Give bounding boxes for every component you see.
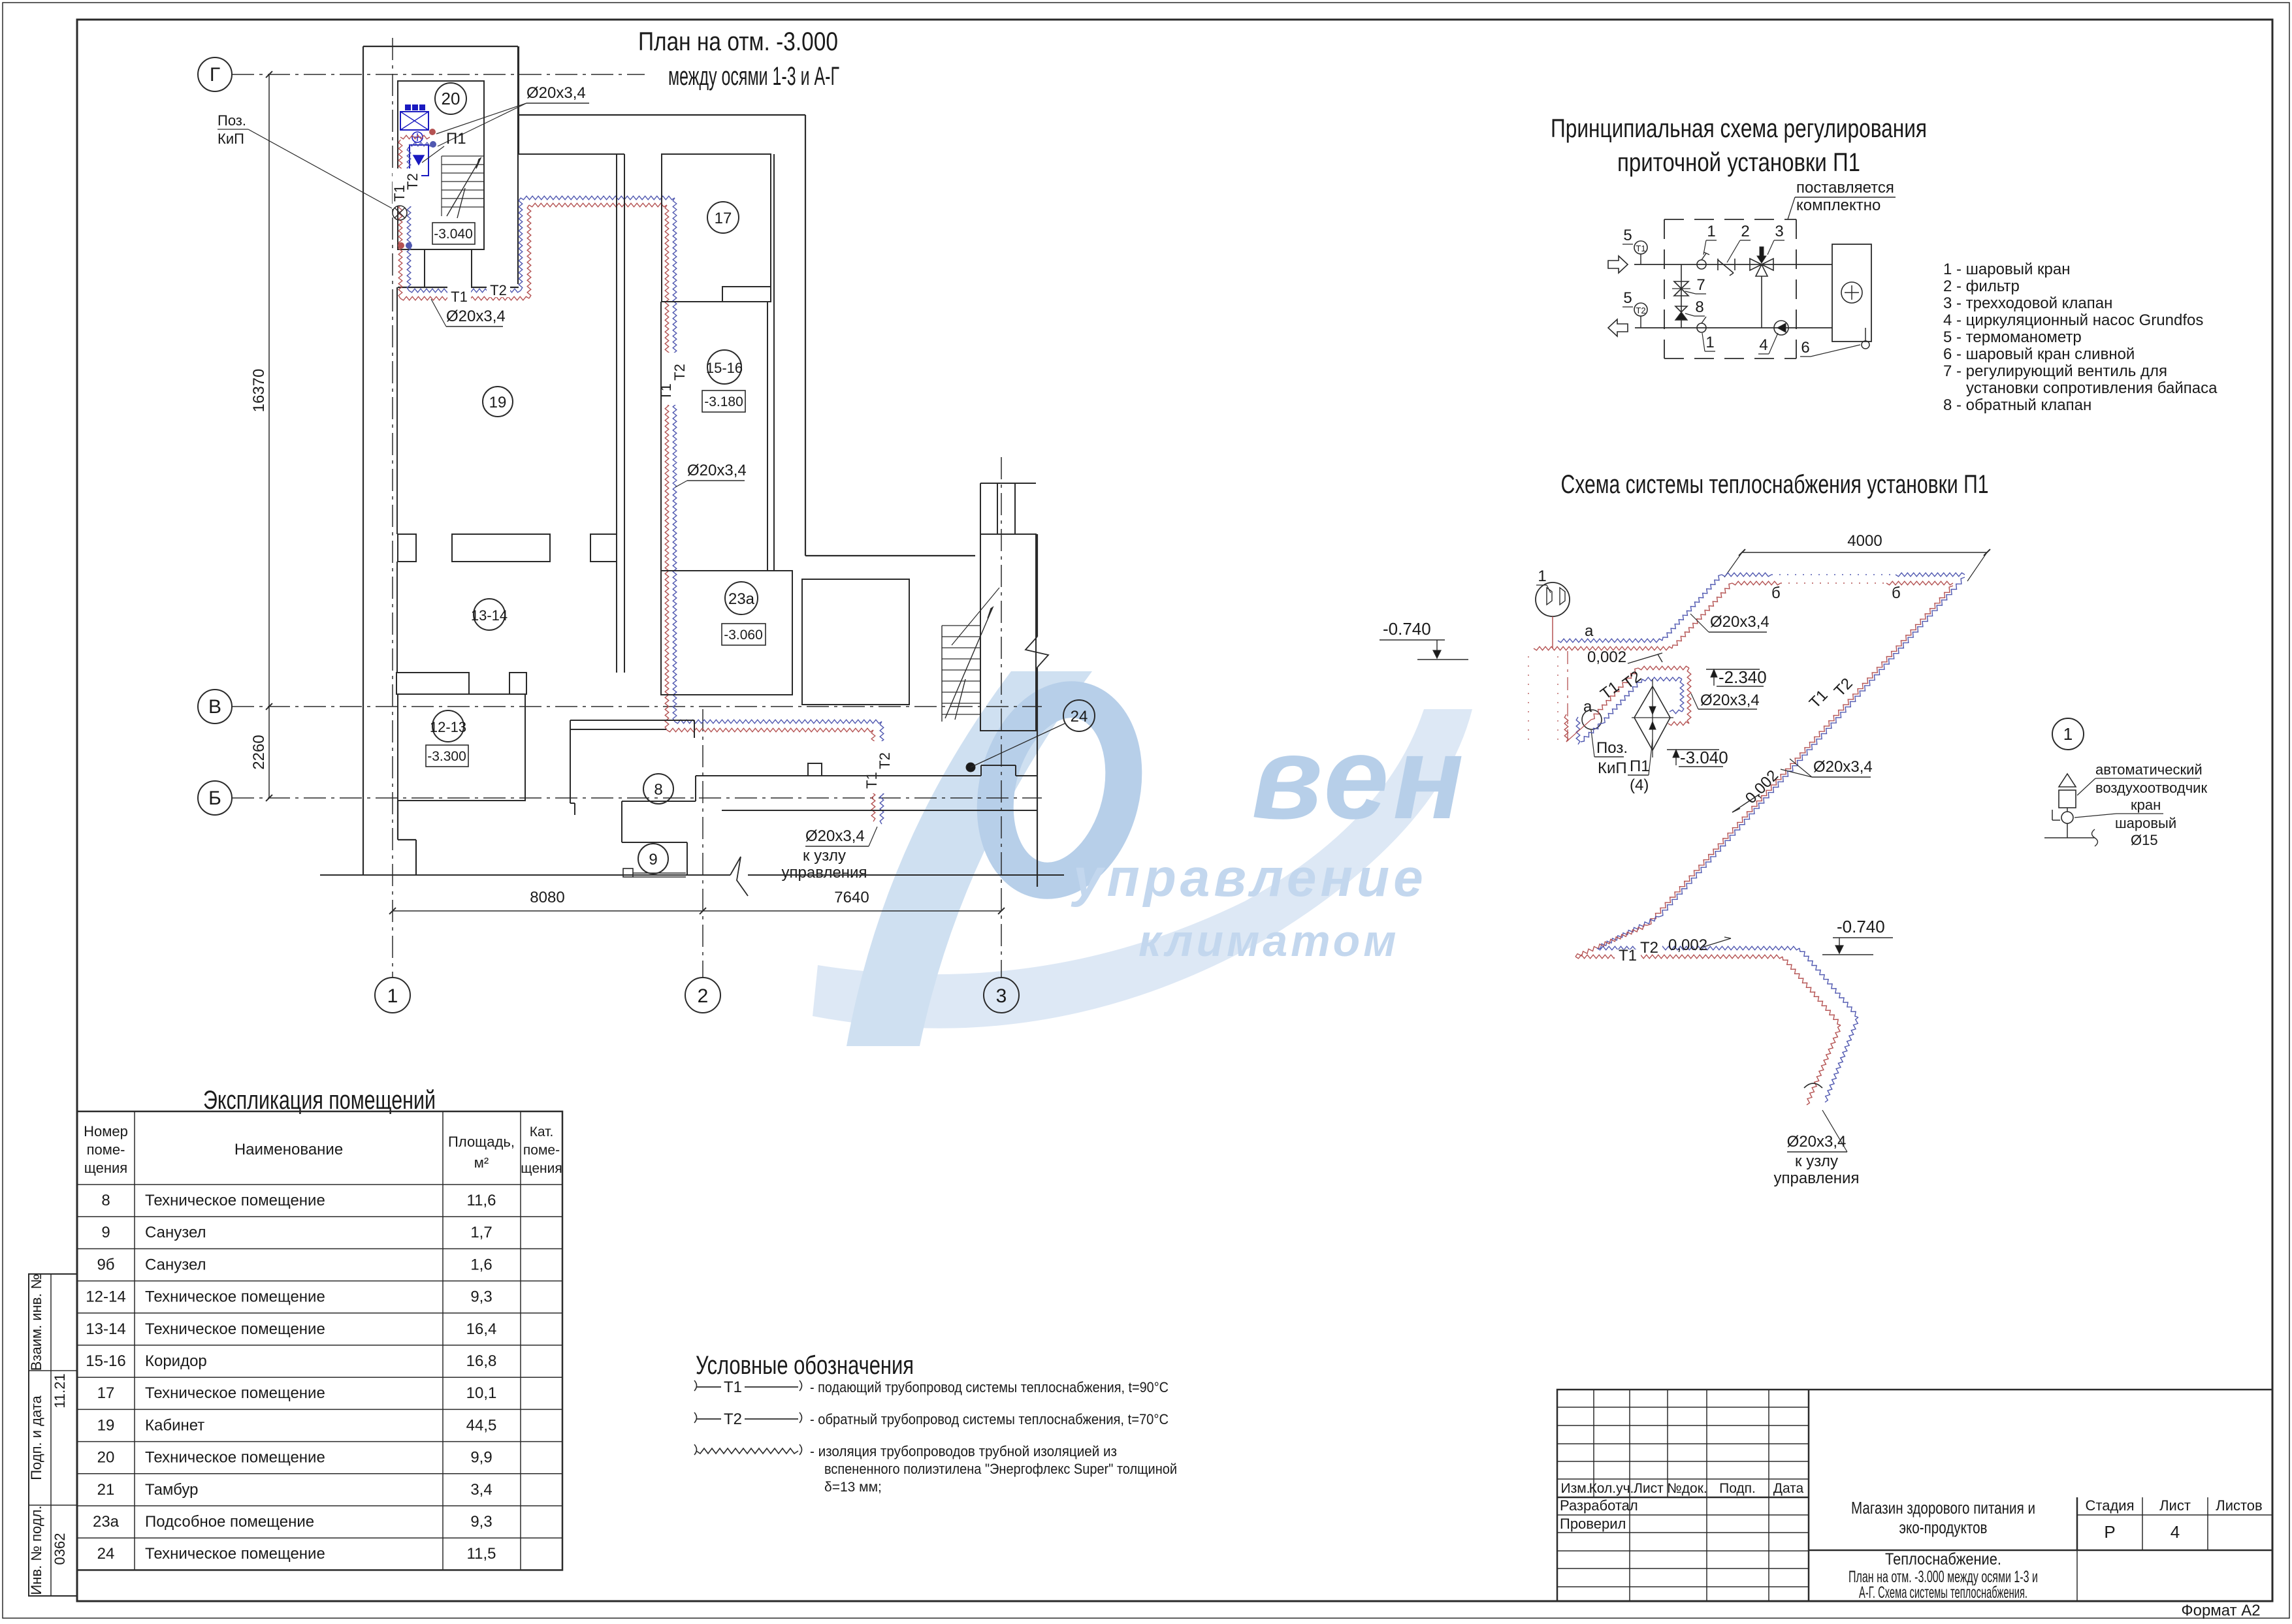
svg-text:0,002: 0,002 [1587, 648, 1626, 666]
svg-text:Взаим. инв. №: Взаим. инв. № [28, 1274, 44, 1371]
svg-text:Подсобное помещение: Подсобное помещение [145, 1513, 314, 1531]
svg-text:4: 4 [1759, 336, 1767, 354]
svg-text:б: б [1771, 584, 1781, 602]
svg-text:-2.340: -2.340 [1719, 667, 1767, 687]
svg-text:Т2: Т2 [671, 364, 688, 381]
svg-text:Техническое помещение: Техническое помещение [145, 1545, 325, 1563]
svg-text:управление: управление [1071, 848, 1427, 908]
svg-text:2260: 2260 [250, 735, 268, 769]
svg-text:4 - циркуляционный насос Grund: 4 - циркуляционный насос Grundfos [1943, 311, 2203, 329]
svg-text:Схема системы теплоснабжения у: Схема системы теплоснабжения установки П… [1561, 470, 1989, 499]
svg-text:9: 9 [649, 851, 657, 868]
svg-text:В: В [208, 696, 221, 718]
svg-text:Поз.: Поз. [218, 112, 246, 129]
svg-text:Санузел: Санузел [145, 1224, 206, 1241]
svg-text:поме-: поме- [87, 1141, 125, 1158]
svg-text:2: 2 [1741, 223, 1749, 240]
svg-text:-3.060: -3.060 [724, 628, 763, 643]
svg-text:Наименование: Наименование [234, 1141, 343, 1158]
svg-text:2 - фильтр: 2 - фильтр [1943, 278, 2020, 295]
svg-text:23а: 23а [728, 590, 755, 608]
svg-text:Т1: Т1 [1619, 947, 1637, 964]
svg-text:Листов: Листов [2216, 1497, 2262, 1514]
svg-text:Кол.уч.: Кол.уч. [1589, 1481, 1634, 1496]
svg-text:24: 24 [1071, 708, 1088, 725]
svg-text:П1: П1 [446, 130, 466, 148]
svg-text:щения: щения [521, 1161, 562, 1176]
svg-text:Т1: Т1 [451, 289, 468, 305]
svg-text:3: 3 [1775, 223, 1783, 240]
svg-text:8: 8 [654, 781, 662, 799]
svg-text:вспененного полиэтилена "Энерг: вспененного полиэтилена "Энергофлекс Sup… [824, 1461, 1177, 1477]
svg-text:Санузел: Санузел [145, 1256, 206, 1273]
svg-text:8: 8 [101, 1192, 110, 1209]
svg-text:б: б [1892, 584, 1901, 602]
svg-text:Площадь,: Площадь, [448, 1134, 515, 1150]
svg-text:к узлу: к узлу [1795, 1153, 1838, 1170]
svg-text:7640: 7640 [834, 889, 869, 906]
svg-text:5: 5 [1623, 227, 1632, 244]
svg-text:6: 6 [1801, 339, 1809, 357]
svg-text:3 - трехходовой клапан: 3 - трехходовой клапан [1943, 295, 2112, 312]
svg-text:9,9: 9,9 [470, 1449, 492, 1467]
svg-text:автоматический: автоматический [2095, 761, 2203, 778]
svg-text:13-14: 13-14 [86, 1320, 125, 1338]
svg-text:установки сопротивления байпас: установки сопротивления байпаса [1966, 379, 2218, 397]
svg-text:а: а [1585, 622, 1594, 640]
svg-text:0,002: 0,002 [1668, 936, 1707, 954]
svg-text:Ø20х3,4: Ø20х3,4 [1710, 613, 1769, 631]
svg-text:Ø20х3,4: Ø20х3,4 [526, 84, 586, 102]
svg-text:Теплоснабжение.: Теплоснабжение. [1885, 1550, 2001, 1568]
svg-text:Техническое помещение: Техническое помещение [145, 1384, 325, 1402]
svg-text:Стадия: Стадия [2086, 1497, 2135, 1514]
svg-text:7 - регулирующий вентиль для: 7 - регулирующий вентиль для [1943, 362, 2167, 380]
svg-text:- обратный трубопровод системы: - обратный трубопровод системы теплоснаб… [810, 1411, 1169, 1427]
svg-text:А-Г. Схема системы теплоснабже: А-Г. Схема системы теплоснабжения. [1859, 1584, 2027, 1602]
svg-text:Г: Г [210, 64, 220, 86]
svg-text:24: 24 [97, 1545, 115, 1563]
svg-text:кран: кран [2131, 797, 2161, 813]
svg-text:1 - шаровый кран: 1 - шаровый кран [1943, 261, 2071, 278]
svg-text:Принципиальная схема регулиров: Принципиальная схема регулирования [1551, 114, 1927, 143]
svg-text:15-16: 15-16 [86, 1352, 125, 1370]
svg-text:7: 7 [1696, 276, 1705, 294]
svg-text:Проверил: Проверил [1560, 1516, 1626, 1532]
svg-text:9б: 9б [97, 1256, 114, 1273]
svg-text:4: 4 [2171, 1522, 2180, 1542]
svg-text:5: 5 [1623, 289, 1632, 307]
svg-text:4000: 4000 [1847, 532, 1882, 550]
svg-text:Техническое помещение: Техническое помещение [145, 1449, 325, 1467]
svg-text:1,6: 1,6 [470, 1256, 492, 1273]
svg-text:3: 3 [996, 985, 1007, 1007]
svg-text:между осями 1-3 и А-Г: между осями 1-3 и А-Г [668, 62, 839, 91]
svg-text:-0.740: -0.740 [1383, 619, 1431, 639]
svg-text:приточной установки П1: приточной установки П1 [1617, 148, 1860, 177]
svg-text:-3.040: -3.040 [1680, 748, 1728, 767]
svg-text:1: 1 [1705, 334, 1714, 351]
svg-text:Изм.: Изм. [1561, 1481, 1590, 1496]
svg-text:- подающий трубопровод системы: - подающий трубопровод системы теплоснаб… [810, 1379, 1169, 1395]
svg-text:Лист: Лист [2159, 1497, 2191, 1514]
svg-text:11.21: 11.21 [52, 1373, 68, 1408]
svg-text:-0.740: -0.740 [1837, 917, 1885, 936]
svg-text:16,4: 16,4 [466, 1320, 497, 1338]
svg-text:-3.300: -3.300 [427, 749, 466, 764]
svg-text:19: 19 [489, 394, 507, 411]
svg-text:Ø20х3,4: Ø20х3,4 [446, 308, 506, 325]
svg-text:вен: вен [1251, 712, 1468, 844]
svg-text:1: 1 [1707, 223, 1715, 240]
svg-text:КиП: КиП [218, 131, 244, 147]
svg-text:12-14: 12-14 [86, 1288, 125, 1306]
svg-text:Р: Р [2104, 1522, 2115, 1542]
svg-text:к узлу: к узлу [803, 847, 846, 865]
svg-text:Кабинет: Кабинет [145, 1416, 204, 1434]
svg-text:17: 17 [715, 210, 732, 227]
svg-text:Ø20х3,4: Ø20х3,4 [687, 462, 747, 479]
svg-text:Коридор: Коридор [145, 1352, 207, 1370]
svg-text:20: 20 [442, 89, 460, 108]
svg-text:Разработал: Разработал [1560, 1497, 1638, 1514]
svg-text:21: 21 [97, 1481, 115, 1499]
svg-text:(4): (4) [1630, 776, 1649, 794]
svg-text:План на отм. -3.000: План на отм. -3.000 [638, 27, 838, 56]
svg-text:3,4: 3,4 [470, 1481, 492, 1499]
svg-text:15-16: 15-16 [706, 360, 743, 376]
svg-text:Инв. № подл.: Инв. № подл. [28, 1505, 44, 1595]
svg-text:Дата: Дата [1773, 1481, 1804, 1496]
svg-text:Ø20х3,4: Ø20х3,4 [805, 827, 865, 845]
svg-text:Подп. и дата: Подп. и дата [28, 1395, 44, 1480]
svg-text:воздухоотводчик: воздухоотводчик [2095, 780, 2207, 796]
svg-text:11,6: 11,6 [467, 1192, 496, 1209]
svg-text:16,8: 16,8 [466, 1352, 497, 1370]
svg-text:10,1: 10,1 [466, 1384, 497, 1402]
svg-text:Ø20х3,4: Ø20х3,4 [1700, 692, 1760, 709]
svg-text:8: 8 [1695, 298, 1703, 316]
svg-text:12-13: 12-13 [430, 719, 466, 735]
svg-text:1,7: 1,7 [470, 1224, 492, 1241]
svg-text:6 - шаровый кран сливной: 6 - шаровый кран сливной [1943, 345, 2135, 363]
svg-text:17: 17 [97, 1384, 115, 1402]
svg-text:Т2: Т2 [724, 1410, 742, 1428]
svg-text:1: 1 [2063, 724, 2073, 744]
svg-text:поме-: поме- [523, 1143, 560, 1158]
svg-text:комплектно: комплектно [1796, 197, 1880, 214]
svg-text:Поз.: Поз. [1596, 739, 1628, 757]
svg-text:№док.: №док. [1667, 1481, 1707, 1496]
svg-text:20: 20 [97, 1449, 115, 1467]
svg-text:Т1: Т1 [724, 1378, 742, 1396]
svg-text:1: 1 [387, 985, 398, 1007]
svg-text:Т1: Т1 [1636, 244, 1645, 253]
svg-text:Формат А2: Формат А2 [2181, 1602, 2260, 1619]
svg-text:19: 19 [97, 1416, 115, 1434]
svg-text:13-14: 13-14 [471, 607, 508, 624]
svg-text:9,3: 9,3 [470, 1288, 492, 1306]
svg-text:Т2: Т2 [404, 173, 421, 190]
svg-text:Б: Б [208, 788, 221, 809]
svg-text:Подп.: Подп. [1719, 1481, 1756, 1496]
svg-text:9: 9 [101, 1224, 110, 1241]
svg-text:2: 2 [698, 985, 709, 1007]
svg-text:Экспликация помещений: Экспликация помещений [203, 1086, 436, 1115]
svg-text:9,3: 9,3 [470, 1513, 492, 1531]
svg-text:Лист: Лист [1634, 1481, 1664, 1496]
svg-text:П1: П1 [1630, 757, 1650, 775]
svg-text:5 - термоманометр: 5 - термоманометр [1943, 328, 2082, 346]
svg-text:Т2: Т2 [877, 752, 893, 769]
svg-text:Магазин здорового питания и: Магазин здорового питания и [1851, 1498, 2035, 1518]
svg-text:- изоляция трубопроводов трубн: - изоляция трубопроводов трубной изоляци… [810, 1443, 1117, 1459]
svg-text:1: 1 [1538, 567, 1546, 585]
svg-text:КиП: КиП [1598, 759, 1627, 777]
svg-text:Условные обозначения: Условные обозначения [696, 1351, 914, 1380]
svg-text:11,5: 11,5 [467, 1545, 496, 1563]
svg-text:Ø20х3,4: Ø20х3,4 [1813, 758, 1873, 776]
svg-text:управления: управления [1774, 1170, 1860, 1187]
svg-text:управления: управления [782, 864, 867, 882]
svg-text:Техническое помещение: Техническое помещение [145, 1192, 325, 1209]
svg-text:δ=13 мм;: δ=13 мм; [824, 1480, 882, 1495]
svg-text:Тамбур: Тамбур [145, 1481, 198, 1499]
svg-text:Ø15: Ø15 [2131, 832, 2158, 848]
svg-text:Техническое помещение: Техническое помещение [145, 1320, 325, 1338]
svg-text:8 - обратный клапан: 8 - обратный клапан [1943, 396, 2091, 414]
svg-text:климатом: климатом [1138, 916, 1400, 966]
svg-text:щения: щения [84, 1160, 127, 1176]
svg-text:Т1: Т1 [658, 383, 674, 400]
svg-text:Т2: Т2 [490, 282, 507, 298]
svg-text:Кат.: Кат. [530, 1124, 554, 1139]
svg-text:Т1: Т1 [864, 772, 880, 789]
svg-text:Т2: Т2 [1640, 939, 1658, 957]
svg-text:Техническое помещение: Техническое помещение [145, 1288, 325, 1306]
svg-text:-3.040: -3.040 [434, 227, 473, 242]
svg-text:м²: м² [474, 1154, 489, 1171]
svg-text:8080: 8080 [530, 889, 564, 906]
svg-text:Т2: Т2 [1636, 306, 1645, 315]
svg-text:эко-продуктов: эко-продуктов [1899, 1518, 1988, 1537]
svg-text:шаровый: шаровый [2115, 815, 2176, 831]
svg-text:16370: 16370 [250, 369, 268, 413]
svg-text:поставляется: поставляется [1796, 179, 1894, 197]
svg-text:23а: 23а [93, 1513, 120, 1531]
svg-text:-3.180: -3.180 [704, 394, 743, 409]
svg-text:44,5: 44,5 [466, 1416, 497, 1434]
svg-text:Номер: Номер [84, 1123, 128, 1139]
svg-text:0362: 0362 [52, 1533, 68, 1565]
